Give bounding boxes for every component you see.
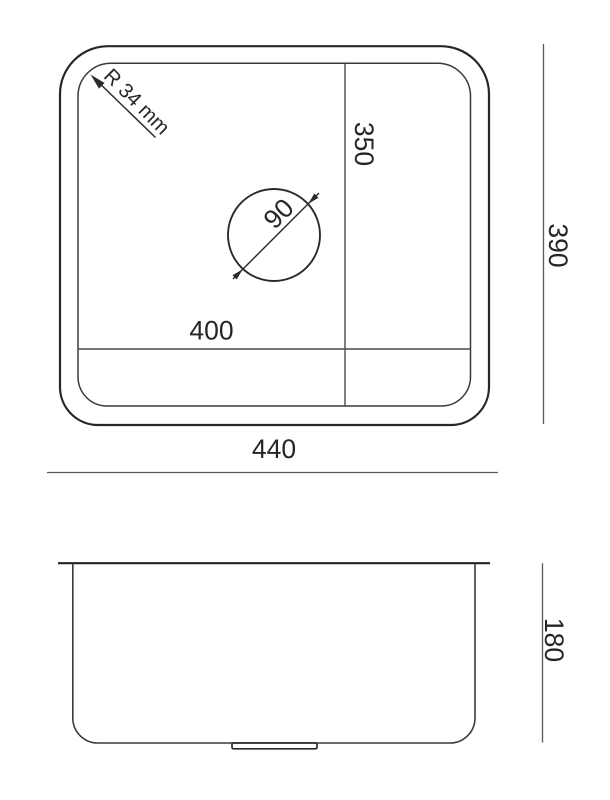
svg-text:400: 400 bbox=[189, 316, 233, 346]
svg-text:R 34 mm: R 34 mm bbox=[99, 64, 174, 139]
svg-text:180: 180 bbox=[539, 618, 569, 662]
svg-text:90: 90 bbox=[258, 193, 300, 235]
svg-text:390: 390 bbox=[543, 223, 573, 267]
svg-text:440: 440 bbox=[252, 434, 296, 464]
svg-text:350: 350 bbox=[349, 122, 379, 166]
